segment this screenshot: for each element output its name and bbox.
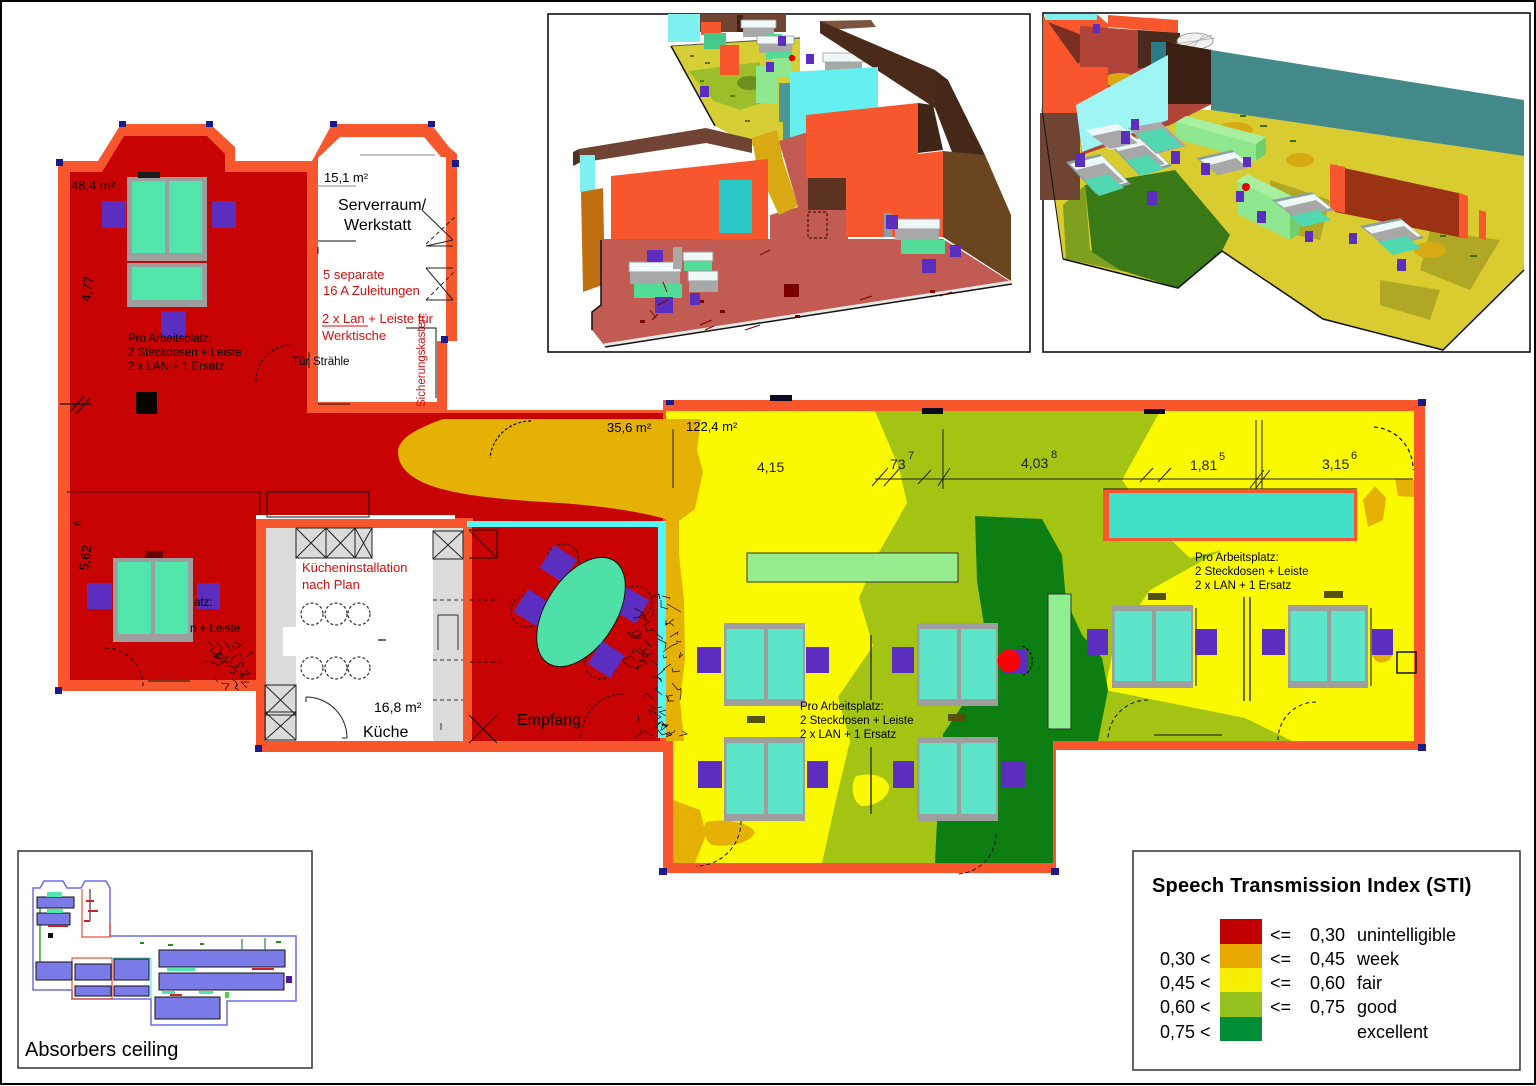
svg-text:Kücheninstallation: Kücheninstallation [302, 560, 408, 575]
svg-text:16 A Zuleitungen: 16 A Zuleitungen [323, 283, 420, 298]
svg-text:2 Steckdosen + Leiste: 2 Steckdosen + Leiste [800, 715, 913, 727]
svg-text:2 x LAN + 1 Ersatz: 2 x LAN + 1 Ersatz [1195, 580, 1291, 592]
svg-text:fair: fair [1357, 973, 1382, 993]
svg-text:n + Leiste: n + Leiste [190, 623, 240, 635]
svg-text:0,75: 0,75 [1310, 997, 1345, 1017]
svg-text:5 separate: 5 separate [323, 267, 384, 282]
svg-text:Sicherungskasten: Sicherungskasten [416, 316, 428, 407]
svg-text:0,60: 0,60 [1310, 973, 1345, 993]
svg-text:3,15: 3,15 [1322, 456, 1349, 472]
svg-text:atz:: atz: [194, 597, 213, 609]
svg-text:Pro Arbeitsplatz:: Pro Arbeitsplatz: [1195, 552, 1279, 564]
svg-text:Werkstatt: Werkstatt [344, 217, 412, 234]
svg-text:0,30: 0,30 [1310, 925, 1345, 945]
svg-text:Absorbers ceiling: Absorbers ceiling [25, 1039, 178, 1061]
svg-text:Empfang: Empfang [517, 712, 581, 729]
svg-text:nach Plan: nach Plan [302, 577, 360, 592]
svg-text:unintelligible: unintelligible [1357, 925, 1456, 945]
svg-text:8: 8 [1051, 449, 1057, 461]
svg-text:0,30 <: 0,30 < [1160, 949, 1211, 969]
svg-text:2 x LAN + 1 Ersatz: 2 x LAN + 1 Ersatz [800, 729, 896, 741]
svg-text:2 Steckdosen + Leiste: 2 Steckdosen + Leiste [1195, 566, 1308, 578]
svg-text:week: week [1356, 949, 1400, 969]
svg-text:Küche: Küche [363, 724, 408, 741]
svg-text:Serverraum/: Serverraum/ [338, 197, 427, 214]
svg-text:16,8 m²: 16,8 m² [374, 699, 422, 715]
svg-text:Pro Arbeitsplatz:: Pro Arbeitsplatz: [800, 701, 884, 713]
svg-text:0,45: 0,45 [1310, 949, 1345, 969]
svg-text:Werktische: Werktische [322, 328, 386, 343]
svg-text:73: 73 [890, 456, 906, 472]
svg-text:<=: <= [1270, 949, 1291, 969]
svg-text:35,6 m²: 35,6 m² [607, 420, 652, 435]
svg-text:122,4 m²: 122,4 m² [686, 419, 738, 434]
svg-text:<=: <= [1270, 973, 1291, 993]
svg-text:1,81: 1,81 [1190, 457, 1217, 473]
svg-text:<=: <= [1270, 925, 1291, 945]
svg-text:Pro Arbeitsplatz:: Pro Arbeitsplatz: [128, 333, 212, 345]
svg-text:15,1 m²: 15,1 m² [324, 170, 369, 185]
svg-text:Speech Transmission Index (STI: Speech Transmission Index (STI) [1152, 875, 1472, 897]
svg-text:<=: <= [1270, 997, 1291, 1017]
svg-text:5: 5 [1219, 451, 1225, 463]
svg-text:0,60 <: 0,60 < [1160, 997, 1211, 1017]
svg-text:7: 7 [908, 450, 914, 462]
svg-text:excellent: excellent [1357, 1022, 1428, 1042]
svg-text:4,15: 4,15 [757, 459, 784, 475]
svg-text:0,45 <: 0,45 < [1160, 973, 1211, 993]
svg-text:Strähle: Strähle [313, 356, 349, 368]
svg-text:good: good [1357, 997, 1397, 1017]
svg-text:Tür: Tür [292, 356, 309, 368]
svg-text:2 x LAN + 1 Ersatz: 2 x LAN + 1 Ersatz [128, 361, 224, 373]
svg-text:4,03: 4,03 [1021, 455, 1048, 471]
svg-text:48,4 m²: 48,4 m² [71, 178, 116, 193]
svg-text:6: 6 [1351, 450, 1357, 462]
svg-text:0,75 <: 0,75 < [1160, 1022, 1211, 1042]
svg-text:2 Steckdosen + Leiste: 2 Steckdosen + Leiste [128, 347, 241, 359]
